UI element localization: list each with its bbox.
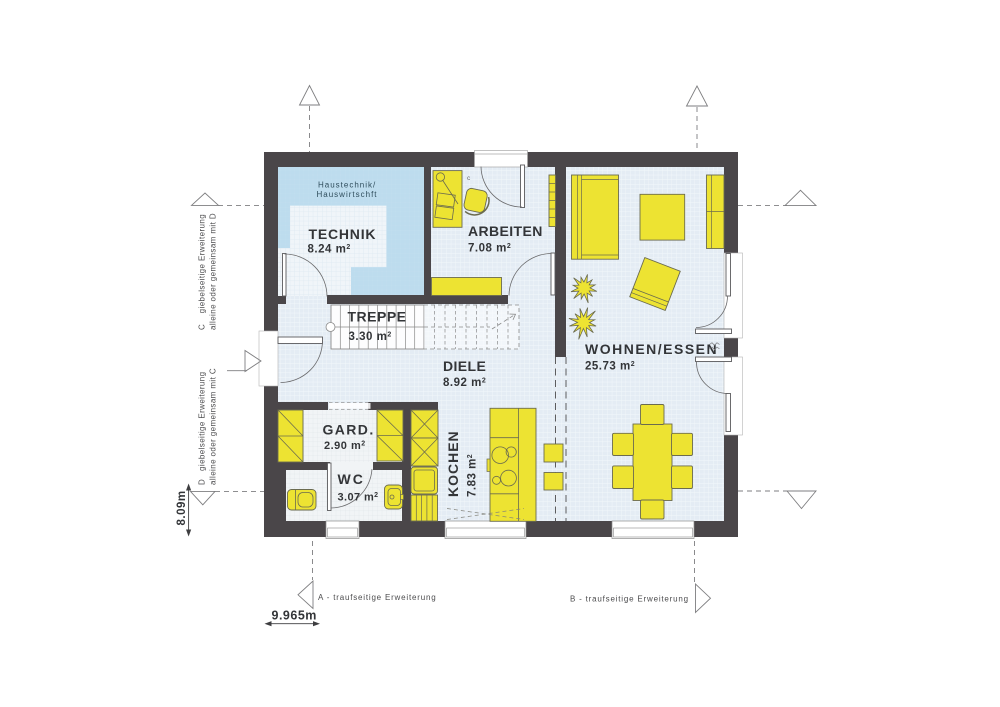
svg-text:Hauswirtschft: Hauswirtschft [317, 190, 378, 199]
svg-text:ARBEITEN: ARBEITEN [468, 223, 543, 239]
svg-text:TECHNIK: TECHNIK [309, 226, 377, 242]
svg-text:alleine oder gemeinsam mit D: alleine oder gemeinsam mit D [209, 213, 218, 330]
svg-text:25.73 m2: 25.73 m2 [585, 361, 635, 373]
svg-text:DIELE: DIELE [443, 358, 486, 374]
svg-text:alleine oder gemeinsam mit C: alleine oder gemeinsam mit C [209, 368, 218, 485]
svg-text:3.30 m2: 3.30 m2 [349, 331, 392, 343]
svg-text:9.965m: 9.965m [272, 609, 317, 623]
svg-text:C giebelseitige Erweiterung: C giebelseitige Erweiterung [198, 214, 207, 330]
svg-text:7.08 m2: 7.08 m2 [468, 243, 511, 255]
svg-text:D giebelseitige Erweiterung: D giebelseitige Erweiterung [198, 372, 207, 485]
svg-text:Haustechnik/: Haustechnik/ [318, 181, 376, 190]
svg-text:7.83 m2: 7.83 m2 [467, 454, 479, 497]
svg-text:8.09m: 8.09m [176, 490, 188, 525]
svg-text:3.07 m2: 3.07 m2 [338, 492, 379, 504]
svg-text:KOCHEN: KOCHEN [445, 430, 461, 497]
svg-text:WOHNEN/ESSEN: WOHNEN/ESSEN [585, 341, 718, 357]
svg-text:2.90 m2: 2.90 m2 [324, 440, 366, 452]
svg-text:GARD.: GARD. [323, 422, 375, 438]
svg-text:B - traufseitige Erweiterung: B - traufseitige Erweiterung [570, 594, 689, 603]
svg-text:8.24 m2: 8.24 m2 [308, 244, 351, 256]
svg-text:8.92 m2: 8.92 m2 [443, 377, 486, 389]
svg-text:TREPPE: TREPPE [348, 309, 407, 325]
svg-text:WC: WC [338, 471, 365, 487]
svg-text:A - traufseitige Erweiterung: A - traufseitige Erweiterung [318, 593, 436, 602]
